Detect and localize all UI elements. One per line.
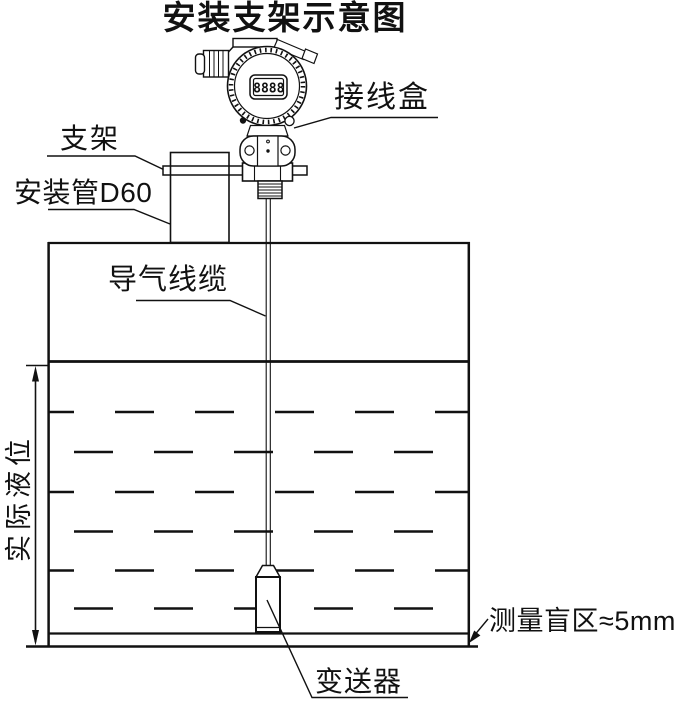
air-cable-label: 导气线缆 (108, 264, 228, 297)
transmitter-head: 8888 (196, 39, 318, 167)
housing-screw-left (240, 117, 246, 123)
actual-level-label: 实际液位 (4, 433, 30, 563)
blind-zone-arrowhead (469, 631, 480, 644)
mounting-pipe-label: 安装管D60 (14, 177, 152, 209)
gland-cap (196, 54, 205, 74)
bracket-leader (47, 156, 164, 170)
diagram-canvas: 8888 (0, 0, 700, 708)
lcd-display: 8888 (250, 75, 287, 99)
gland-body (204, 51, 229, 78)
head-right-tab (302, 49, 318, 64)
housing-screw-right (285, 116, 294, 125)
block-center-dot (266, 149, 269, 152)
head-neck (247, 126, 288, 137)
junction-box-label: 接线盒 (334, 81, 430, 116)
mounting-pipe-leader (48, 210, 170, 225)
air-cable-lines (266, 199, 270, 568)
dimension-arrowhead-down (32, 630, 39, 646)
dimension-arrowhead-up (32, 366, 39, 382)
page-title: 安装支架示意图 (60, 0, 510, 37)
cable-gland (196, 51, 229, 78)
air-cable-leader (136, 301, 266, 317)
blind-zone-label: 测量盲区≈5mm (489, 606, 676, 637)
probe-taper (256, 566, 280, 578)
bracket-label: 支架 (60, 123, 120, 155)
junction-box-leader (294, 118, 438, 129)
tank-outline (26, 242, 478, 647)
head-top-plate (233, 39, 277, 48)
thread-fitting (243, 163, 293, 199)
probe-label: 变送器 (315, 666, 402, 698)
probe-body (256, 577, 280, 632)
lcd-reading: 8888 (253, 82, 284, 97)
blind-zone-pointer (469, 619, 488, 643)
